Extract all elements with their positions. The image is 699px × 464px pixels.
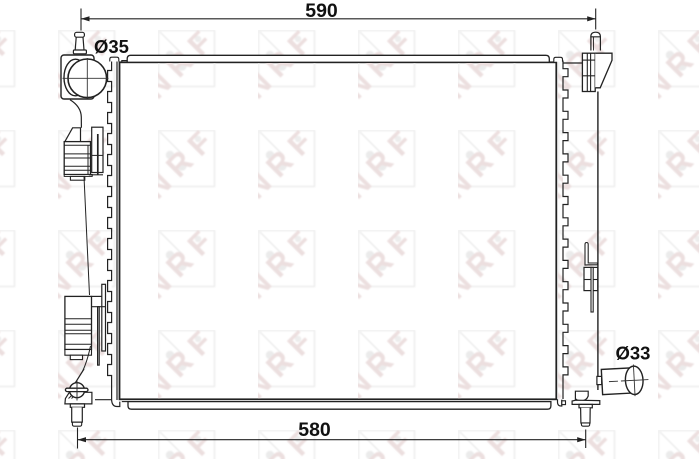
svg-text:580: 580	[298, 419, 331, 441]
svg-text:590: 590	[305, 0, 338, 22]
svg-text:Ø35: Ø35	[94, 36, 129, 57]
svg-text:Ø33: Ø33	[616, 343, 651, 364]
